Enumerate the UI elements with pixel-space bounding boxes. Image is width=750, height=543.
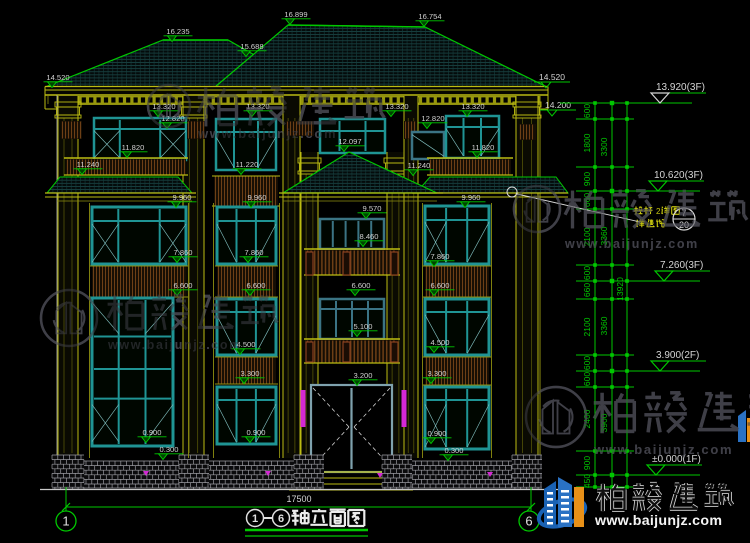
svg-text:6.600: 6.600 (173, 281, 192, 290)
svg-text:12.097: 12.097 (338, 137, 361, 146)
svg-text:13.320: 13.320 (152, 102, 175, 111)
svg-text:660: 660 (582, 283, 592, 297)
svg-text:14.200: 14.200 (545, 100, 571, 110)
svg-text:www.baijunjz.com: www.baijunjz.com (107, 338, 242, 352)
svg-text:3300: 3300 (599, 137, 609, 156)
svg-text:10.620(3F): 10.620(3F) (654, 170, 703, 181)
svg-text:3.200: 3.200 (353, 371, 372, 380)
svg-text:3.300: 3.300 (240, 369, 259, 378)
svg-text:7.260(3F): 7.260(3F) (660, 260, 703, 271)
svg-text:www.baijunjz.com: www.baijunjz.com (593, 442, 733, 457)
svg-text:1: 1 (252, 513, 258, 525)
svg-text:6.600: 6.600 (351, 281, 370, 290)
svg-text:3360: 3360 (599, 316, 609, 335)
svg-text:600: 600 (582, 104, 592, 118)
svg-text:2100: 2100 (582, 317, 592, 336)
svg-text:6.600: 6.600 (430, 281, 449, 290)
svg-text:6: 6 (525, 514, 532, 529)
svg-text:900: 900 (582, 456, 592, 470)
svg-text:3.900(2F): 3.900(2F) (656, 350, 699, 361)
svg-text:2: 2 (656, 207, 661, 216)
svg-text:0.300: 0.300 (159, 445, 178, 454)
svg-text:www.baijunjz.com: www.baijunjz.com (564, 237, 699, 251)
svg-text:6: 6 (278, 513, 284, 525)
svg-text:1: 1 (62, 514, 69, 529)
svg-text:1800: 1800 (582, 133, 592, 152)
svg-text:16.235: 16.235 (166, 27, 189, 36)
svg-text:600: 600 (582, 356, 592, 370)
svg-text:7.860: 7.860 (173, 248, 192, 257)
svg-text:9.960: 9.960 (247, 193, 266, 202)
svg-text:11.220: 11.220 (236, 160, 259, 169)
svg-text:450: 450 (582, 474, 592, 488)
svg-text:11.240: 11.240 (77, 160, 100, 169)
svg-text:9.960: 9.960 (172, 193, 191, 202)
svg-text:12.820: 12.820 (421, 114, 444, 123)
svg-text:13.320: 13.320 (385, 102, 408, 111)
svg-text:0.900: 0.900 (142, 428, 161, 437)
svg-text:9.570: 9.570 (362, 204, 381, 213)
svg-text:15.688: 15.688 (240, 42, 263, 51)
svg-text:www.baijunjz.com: www.baijunjz.com (197, 126, 337, 141)
svg-text:7.860: 7.860 (430, 252, 449, 261)
svg-text:17500: 17500 (286, 494, 311, 504)
svg-text:11.820: 11.820 (472, 143, 495, 152)
svg-text:900: 900 (582, 172, 592, 186)
svg-text:13.920(3F): 13.920(3F) (656, 82, 705, 93)
svg-text:16.899: 16.899 (284, 10, 307, 19)
svg-text:www.baijunjz.com: www.baijunjz.com (594, 513, 722, 529)
svg-text:8.460: 8.460 (359, 232, 378, 241)
svg-text:14.520: 14.520 (539, 72, 565, 82)
svg-text:3.300: 3.300 (427, 369, 446, 378)
svg-text:600: 600 (582, 266, 592, 280)
svg-text:0.900: 0.900 (246, 428, 265, 437)
svg-text:11.240: 11.240 (408, 161, 431, 170)
svg-text:600: 600 (582, 372, 592, 386)
svg-text:0.900: 0.900 (427, 429, 446, 438)
svg-text:9.960: 9.960 (461, 193, 480, 202)
svg-text:13920: 13920 (615, 277, 625, 301)
svg-text:11.820: 11.820 (122, 143, 145, 152)
svg-text:7.860: 7.860 (244, 248, 263, 257)
svg-text:14.520: 14.520 (46, 73, 69, 82)
svg-text:6.600: 6.600 (246, 281, 265, 290)
svg-text:4.500: 4.500 (430, 338, 449, 347)
svg-text:5.100: 5.100 (353, 322, 372, 331)
svg-text:0.300: 0.300 (444, 446, 463, 455)
svg-text:16.754: 16.754 (418, 12, 441, 21)
svg-text:13.320: 13.320 (461, 102, 484, 111)
